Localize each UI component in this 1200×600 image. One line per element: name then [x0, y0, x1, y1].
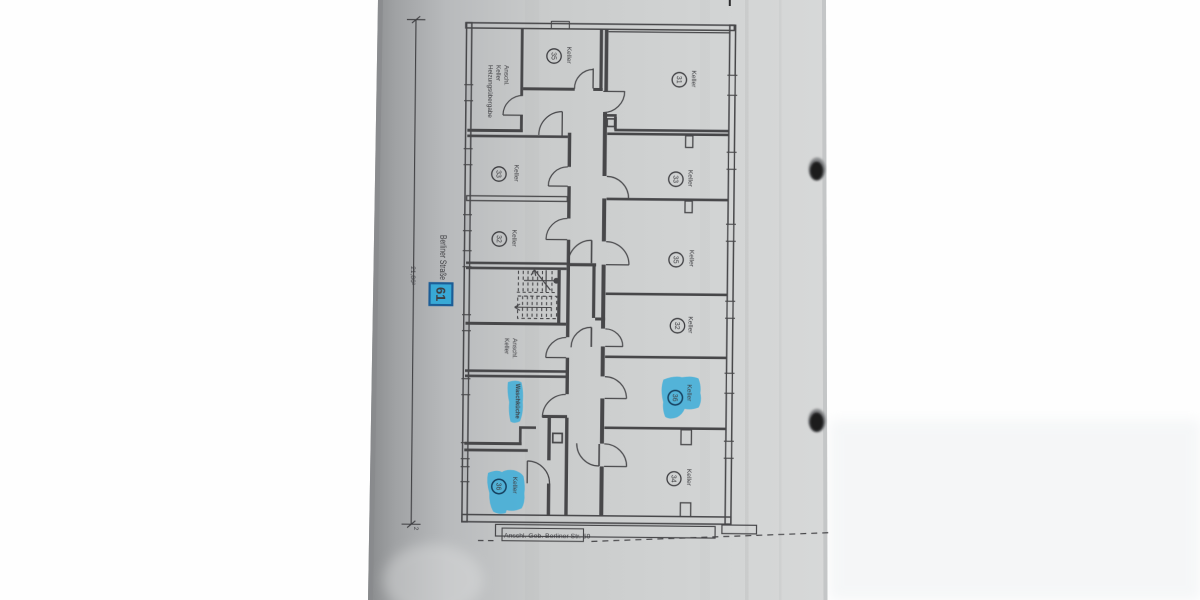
svg-text:61: 61 — [433, 287, 448, 302]
svg-text:Keller: Keller — [686, 170, 693, 188]
svg-text:34: 34 — [670, 475, 677, 483]
svg-text:Anschl.: Anschl. — [511, 338, 518, 359]
svg-text:Anschl.: Anschl. — [502, 65, 509, 86]
svg-text:32: 32 — [673, 322, 680, 330]
svg-text:Keller: Keller — [510, 230, 517, 248]
svg-text:35: 35 — [550, 52, 557, 60]
svg-text:32: 32 — [495, 235, 502, 243]
svg-text:33: 33 — [494, 170, 501, 178]
svg-text:36: 36 — [671, 394, 678, 402]
svg-text:Keller: Keller — [565, 47, 572, 65]
svg-text:35: 35 — [672, 256, 679, 264]
svg-text:2: 2 — [412, 527, 419, 531]
svg-text:Keller: Keller — [687, 316, 694, 334]
svg-text:Keller: Keller — [690, 70, 697, 88]
svg-text:Berliner Straße: Berliner Straße — [438, 235, 448, 280]
svg-text:Keller: Keller — [685, 469, 692, 487]
svg-text:33: 33 — [671, 175, 678, 183]
svg-text:Anschl. Geb. Berliner Str. 59: Anschl. Geb. Berliner Str. 59 — [504, 533, 591, 541]
svg-text:31: 31 — [675, 76, 682, 84]
svg-text:36: 36 — [494, 483, 501, 491]
svg-text:Keller: Keller — [494, 65, 501, 81]
svg-text:Keller: Keller — [513, 165, 520, 183]
svg-text:Keller: Keller — [685, 384, 692, 402]
svg-text:21,86²: 21,86² — [409, 266, 416, 286]
svg-text:Keller: Keller — [503, 338, 510, 354]
svg-text:Keller: Keller — [688, 250, 695, 268]
svg-text:Waschküche: Waschküche — [513, 384, 520, 420]
svg-text:Keller: Keller — [511, 477, 518, 495]
svg-text:Heizungsübergabe: Heizungsübergabe — [486, 65, 494, 118]
